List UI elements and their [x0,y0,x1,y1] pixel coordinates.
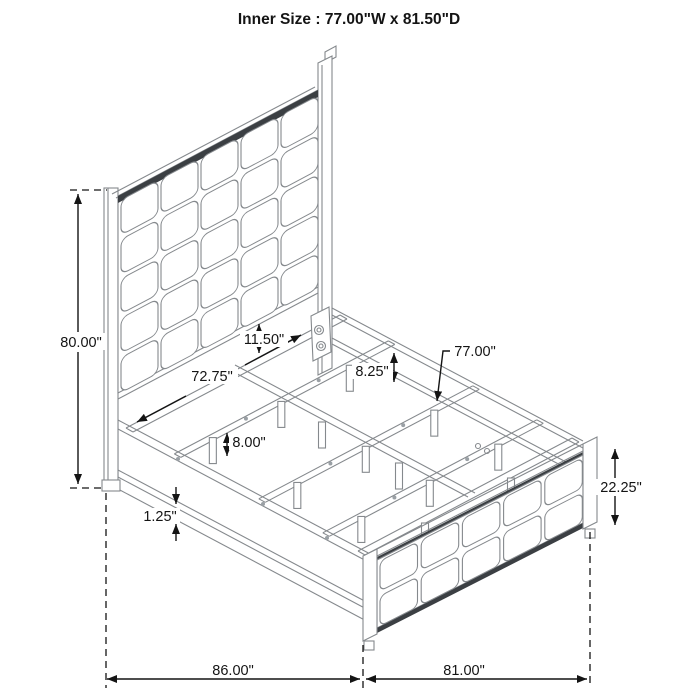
dim-label-rail-trim: 1.25" [143,509,176,525]
dim-leg-height: 8.00" [227,433,270,456]
slat-bolt [244,417,248,421]
slat-leg [294,482,301,508]
center-rail-leg [319,422,326,448]
bed-dimension-diagram-page: 80.00" 72.75" 11.50" 8.25" 77.00" [0,0,700,700]
rail-bracket [311,307,331,361]
dim-footboard-height: 22.25" [596,449,646,525]
dim-overall-width: 81.00" [366,661,587,679]
dim-label-leg-height: 8.00" [232,435,265,451]
slat-leg [358,516,365,542]
footboard-post-near [363,549,377,641]
slat-bolt [392,496,396,500]
page-title: Inner Size : 77.00"W x 81.50"D [238,11,460,28]
slat-leg [209,438,216,464]
slat-leg [362,446,369,472]
dim-inner-width: 77.00" [437,343,499,401]
footboard-post-far [583,437,597,529]
headboard-post-left [104,188,118,490]
slat-leg [278,401,285,427]
dim-label-overall-width: 81.00" [443,663,484,679]
dim-headboard-height: 80.00" [57,194,105,484]
dim-label-rail-ledge: 8.25" [355,364,388,380]
slat-bolt [317,378,321,382]
dim-overall-length: 86.00" [107,661,360,679]
bed-dimension-diagram: 80.00" 72.75" 11.50" 8.25" 77.00" [0,0,700,700]
dim-label-headboard-height: 80.00" [60,335,101,351]
dim-label-footboard-height: 22.25" [600,480,641,496]
slat-bolt [328,462,332,466]
slat-leg [495,444,502,470]
headboard-tufted-grid [121,96,318,393]
dim-panel-gap: 11.50" [240,324,288,353]
slat-leg [426,480,433,506]
headboard [102,46,336,491]
slat-bolt [401,423,405,427]
headboard-post-left-foot [102,480,120,491]
footboard-foot [364,641,374,650]
slat-leg [431,410,438,436]
dim-rail-trim: 1.25" [140,487,180,541]
dim-label-overall-length: 86.00" [212,663,253,679]
center-rail-leg [396,463,403,489]
dim-label-side-rail-inner: 72.75" [191,369,232,385]
dim-label-panel-gap: 11.50" [244,332,284,348]
dim-label-inner-width: 77.00" [454,344,495,360]
slat-bolt [465,457,469,461]
